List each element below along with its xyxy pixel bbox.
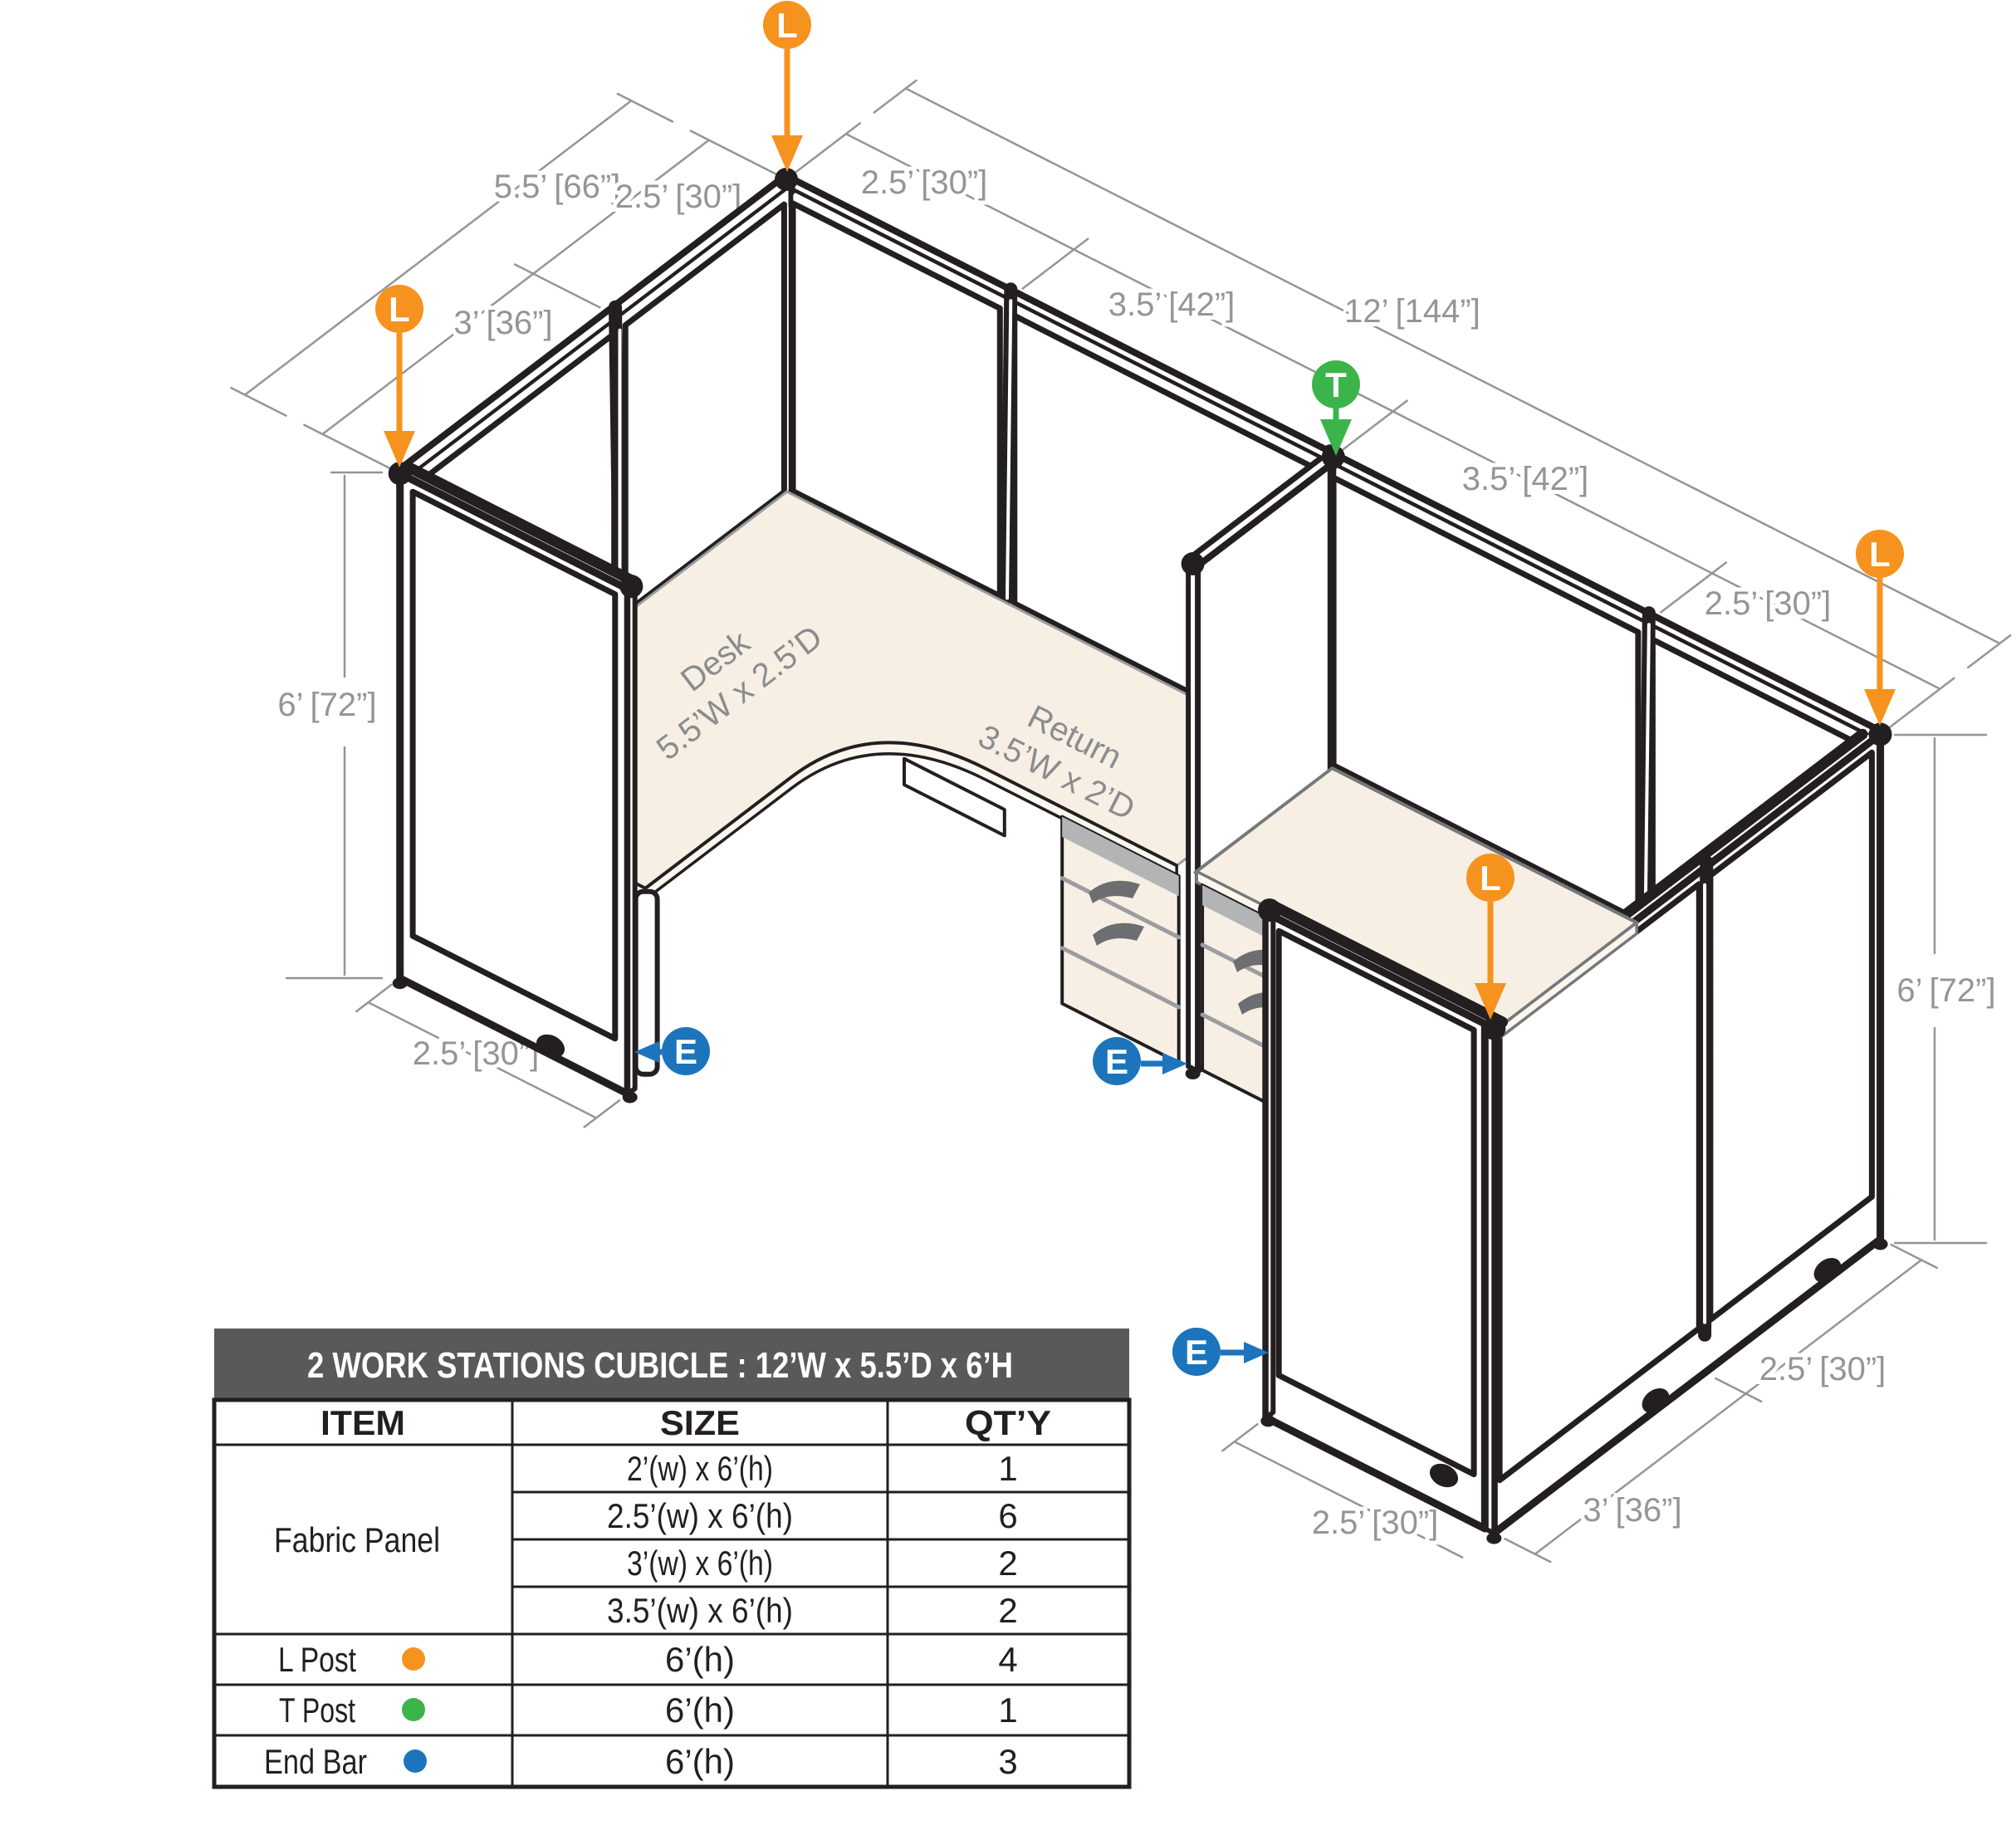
svg-text:5.5’ [66”]: 5.5’ [66”] [494, 169, 621, 205]
svg-text:T Post: T Post [279, 1691, 355, 1730]
svg-text:1: 1 [998, 1449, 1017, 1488]
svg-text:4: 4 [998, 1640, 1017, 1679]
svg-text:2.5’ [30”]: 2.5’ [30”] [1705, 585, 1832, 622]
svg-text:E: E [1105, 1042, 1128, 1081]
svg-text:3: 3 [998, 1742, 1017, 1781]
svg-text:Fabric Panel: Fabric Panel [274, 1520, 440, 1559]
svg-text:6’(h): 6’(h) [665, 1691, 735, 1730]
svg-text:6’(h): 6’(h) [665, 1742, 735, 1781]
svg-text:E: E [1185, 1333, 1208, 1372]
svg-text:2.5’ [30”]: 2.5’ [30”] [1759, 1351, 1886, 1387]
svg-text:L: L [1480, 859, 1501, 898]
svg-text:End Bar: End Bar [264, 1742, 367, 1781]
svg-text:SIZE: SIZE [660, 1403, 740, 1442]
svg-text:2.5’ [30”]: 2.5’ [30”] [615, 179, 742, 215]
svg-text:3’ [36”]: 3’ [36”] [1583, 1492, 1681, 1529]
svg-text:2.5’ [30”]: 2.5’ [30”] [1312, 1505, 1439, 1541]
svg-text:6’ [72”]: 6’ [72”] [1896, 972, 1995, 1009]
svg-text:2.5’ [30”]: 2.5’ [30”] [861, 164, 988, 201]
svg-text:6: 6 [998, 1496, 1017, 1535]
svg-text:2.5’(w) x 6’(h): 2.5’(w) x 6’(h) [607, 1496, 793, 1535]
svg-text:3’(w) x 6’(h): 3’(w) x 6’(h) [627, 1544, 773, 1583]
svg-text:2’(w) x 6’(h): 2’(w) x 6’(h) [627, 1449, 773, 1488]
svg-text:2: 2 [998, 1591, 1017, 1630]
svg-text:1: 1 [998, 1691, 1017, 1730]
svg-text:3.5’ [42”]: 3.5’ [42”] [1108, 286, 1236, 323]
svg-text:6’ [72”]: 6’ [72”] [277, 687, 376, 723]
svg-text:3’ [36”]: 3’ [36”] [453, 305, 552, 341]
svg-text:L Post: L Post [278, 1640, 356, 1679]
svg-text:6’(h): 6’(h) [665, 1640, 735, 1679]
svg-text:T: T [1325, 365, 1347, 404]
svg-text:QT’Y: QT’Y [965, 1403, 1051, 1442]
svg-text:ITEM: ITEM [321, 1403, 405, 1442]
svg-text:2 WORK STATIONS CUBICLE : 12: 2 WORK STATIONS CUBICLE : 12’W x 5.5’D x… [307, 1345, 1013, 1386]
svg-text:3.5’(w) x 6’(h): 3.5’(w) x 6’(h) [607, 1591, 793, 1630]
svg-text:L: L [389, 290, 410, 329]
svg-text:12’ [144”]: 12’ [144”] [1344, 293, 1480, 330]
svg-text:L: L [1869, 535, 1891, 574]
svg-text:3.5’ [42”]: 3.5’ [42”] [1462, 461, 1589, 497]
svg-text:2: 2 [998, 1544, 1017, 1583]
svg-text:L: L [776, 6, 798, 45]
svg-text:E: E [674, 1032, 697, 1071]
